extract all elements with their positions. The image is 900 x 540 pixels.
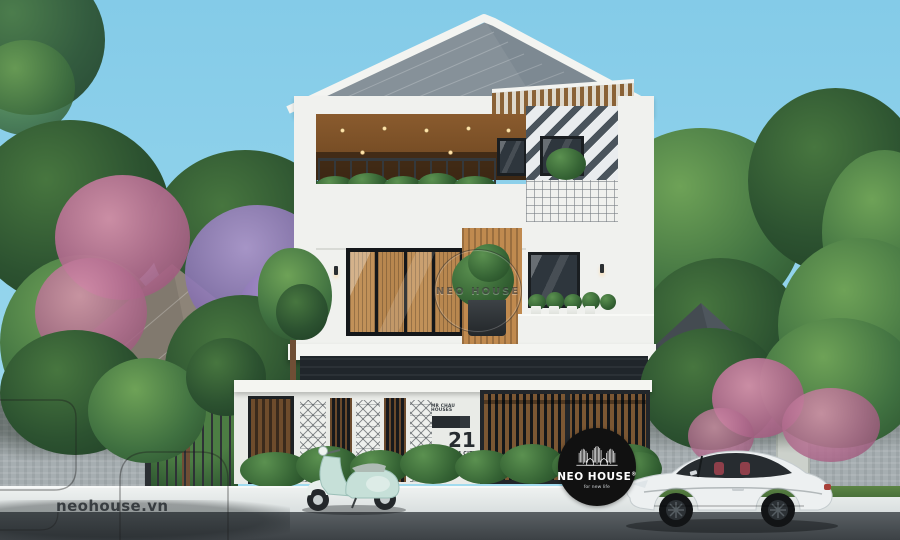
plate-owner: MR CHAU HOUSES [431, 404, 467, 413]
downlight-icon [448, 150, 453, 155]
gate-rail [484, 400, 646, 404]
downlight-icon [382, 126, 387, 131]
badge-brand: NEO HOUSE® [557, 472, 637, 483]
site-url-watermark: neohouse.vn [56, 497, 168, 515]
center-watermark-label: NEO HOUSE [436, 286, 520, 297]
plate-number: 21 [448, 430, 482, 450]
center-watermark: NEO HOUSE [434, 249, 522, 333]
neohouse-badge: NEO HOUSE® for new life [558, 428, 636, 506]
outline-watermark [0, 380, 320, 540]
downlight-icon [424, 128, 429, 133]
planter-plant [600, 294, 616, 310]
window-plant [546, 148, 586, 180]
downlight-icon [340, 128, 345, 133]
downlight-icon [506, 128, 511, 133]
downlight-icon [466, 126, 471, 131]
car [614, 440, 850, 536]
wall-lamp-icon [334, 266, 338, 275]
badge-tagline: for new life [584, 484, 610, 489]
palm-foliage [276, 284, 328, 340]
neohouse-logo-icon [575, 444, 619, 470]
plate-slot [432, 416, 470, 428]
wall-lamp-icon [600, 264, 604, 273]
floor3-window-left [497, 138, 527, 176]
breeze-block-balustrade [526, 180, 618, 222]
downlight-icon [360, 150, 365, 155]
registered-mark: ® [631, 472, 637, 478]
render-scene: MR CHAU HOUSES 21 HCM CITY [0, 0, 900, 540]
